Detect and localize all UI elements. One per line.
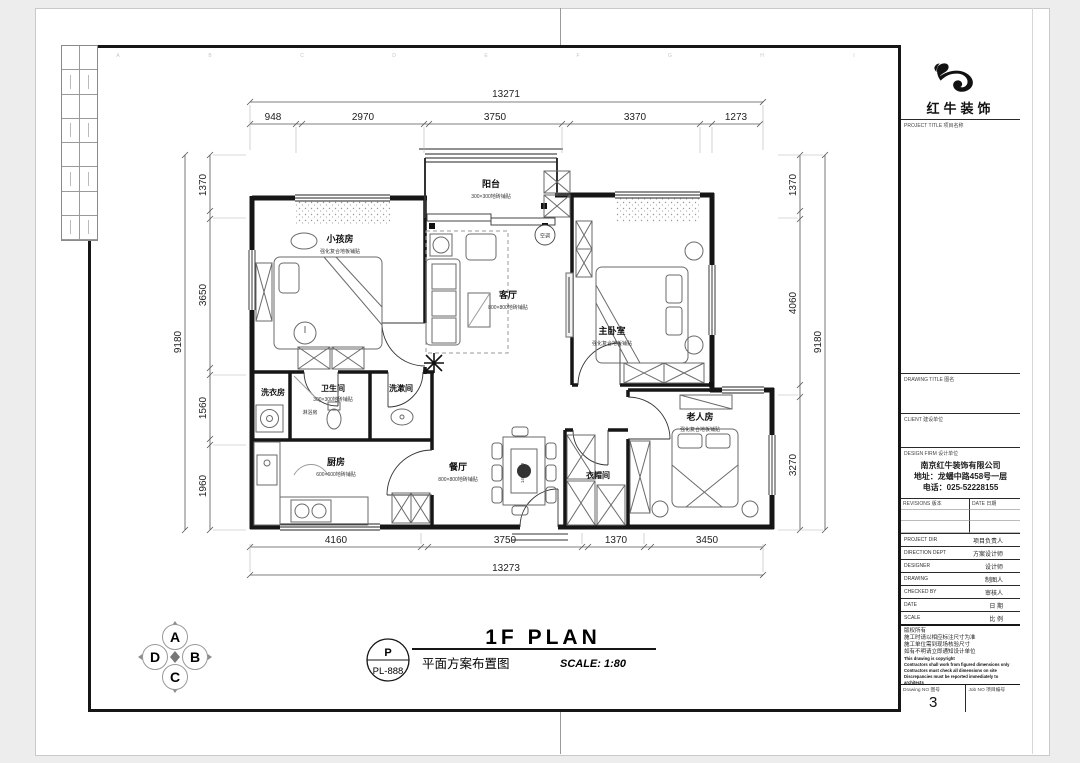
drawing-title-group: P PL-888 1F PLAN 平面方案布置图 SCALE: 1:80 bbox=[367, 626, 656, 681]
bull-logo-icon bbox=[929, 60, 993, 98]
floor-plan: A B C D E F G H I bbox=[88, 45, 900, 712]
compass-b: B bbox=[190, 649, 200, 665]
shower-label: 淋浴房 bbox=[302, 409, 317, 416]
svg-text:300×300地砖铺贴: 300×300地砖铺贴 bbox=[471, 193, 511, 200]
svg-text:3370: 3370 bbox=[624, 112, 647, 123]
sofa bbox=[426, 259, 460, 345]
elder-bed bbox=[672, 429, 738, 507]
toilet bbox=[327, 409, 341, 429]
svg-text:4060: 4060 bbox=[788, 291, 799, 314]
badge-letter: P bbox=[384, 647, 391, 659]
svg-text:13271: 13271 bbox=[492, 89, 520, 100]
fold-mark-bottom bbox=[560, 712, 561, 754]
rev-date-label: DATE 日期 bbox=[970, 499, 1020, 510]
frame-grid-letters: A B C D E F G H I bbox=[116, 53, 854, 59]
drawing-title-field: DRAWING TITLE 图名 bbox=[901, 373, 1020, 413]
plan-title-en: 1F PLAN bbox=[485, 626, 601, 649]
svg-text:1560: 1560 bbox=[198, 396, 209, 419]
room-dining: 餐厅 bbox=[448, 461, 467, 472]
svg-text:9180: 9180 bbox=[173, 330, 184, 353]
stove bbox=[291, 500, 331, 522]
svg-text:E: E bbox=[484, 53, 488, 59]
svg-text:3650: 3650 bbox=[198, 283, 209, 306]
room-balcony: 阳台 bbox=[482, 178, 500, 189]
drawing-no-label: Drawing NO 图号 bbox=[903, 686, 963, 693]
row-direction-dept: DIRECTION DEPT方案设计师 bbox=[901, 546, 1020, 559]
badge-code: PL-888 bbox=[373, 666, 404, 677]
svg-text:4160: 4160 bbox=[325, 535, 348, 546]
room-laundry: 洗衣房 bbox=[261, 387, 285, 397]
svg-text:1370: 1370 bbox=[788, 173, 799, 196]
svg-text:C: C bbox=[300, 53, 304, 59]
svg-text:300×300地砖铺贴: 300×300地砖铺贴 bbox=[313, 396, 353, 403]
project-title-field bbox=[901, 130, 1020, 373]
plan-title-cn: 平面方案布置图 bbox=[422, 656, 510, 671]
svg-text:3750: 3750 bbox=[484, 112, 507, 123]
title-block: 红牛装饰 PROJECT TITLE 项目名称 DRAWING TITLE 图名… bbox=[898, 45, 1020, 712]
drawing-number-row: Drawing NO 图号 3 Job NO 项目编号 bbox=[901, 684, 1020, 712]
margin-line bbox=[1032, 8, 1033, 754]
row-designer: DESIGNER设计师 bbox=[901, 559, 1020, 572]
svg-text:H: H bbox=[760, 53, 764, 59]
firm-address: 地址：龙蟠中路458号一层 bbox=[901, 471, 1020, 482]
compass-c: C bbox=[170, 669, 180, 685]
info-rows: PROJECT DIR项目负责人 DIRECTION DEPT方案设计师 DES… bbox=[901, 533, 1020, 624]
kids-pillow bbox=[279, 263, 299, 293]
row-project-dir: PROJECT DIR项目负责人 bbox=[901, 533, 1020, 546]
svg-text:F: F bbox=[576, 53, 579, 59]
company-name: 红牛装饰 bbox=[926, 98, 994, 117]
svg-text:2970: 2970 bbox=[352, 112, 375, 123]
masonry-hatch-master bbox=[615, 198, 700, 222]
nightstand bbox=[685, 242, 703, 260]
svg-text:1370: 1370 bbox=[198, 173, 209, 196]
dining-chair bbox=[492, 443, 502, 459]
masonry-hatch-kids bbox=[295, 201, 390, 225]
room-kids: 小孩房 bbox=[325, 233, 353, 244]
svg-text:800×800地砖铺贴: 800×800地砖铺贴 bbox=[488, 304, 528, 311]
svg-text:A: A bbox=[116, 53, 120, 59]
svg-text:800×800地砖铺贴: 800×800地砖铺贴 bbox=[438, 476, 478, 483]
svg-text:空调: 空调 bbox=[540, 233, 550, 240]
svg-text:G: G bbox=[668, 53, 672, 59]
master-bed bbox=[596, 267, 688, 363]
svg-text:600×600地砖铺贴: 600×600地砖铺贴 bbox=[316, 471, 356, 478]
extension-lines bbox=[213, 105, 823, 572]
kids-chair bbox=[291, 233, 317, 249]
plan-scale: SCALE: 1:80 bbox=[560, 658, 627, 670]
svg-text:9180: 9180 bbox=[813, 330, 824, 353]
svg-text:3750: 3750 bbox=[494, 535, 517, 546]
svg-text:强化复合地板铺贴: 强化复合地板铺贴 bbox=[320, 248, 360, 255]
balcony-slider bbox=[427, 214, 555, 225]
svg-text:B: B bbox=[208, 53, 212, 59]
svg-text:948: 948 bbox=[265, 112, 282, 123]
client-field: CLIENT 建设单位 bbox=[901, 413, 1020, 447]
room-kitchen: 厨房 bbox=[327, 456, 345, 467]
svg-text:1370: 1370 bbox=[605, 535, 628, 546]
row-date: DATE日 期 bbox=[901, 598, 1020, 611]
kids-bed bbox=[274, 257, 382, 349]
drawing-no-value: 3 bbox=[903, 694, 963, 711]
svg-text:3270: 3270 bbox=[788, 453, 799, 476]
svg-text:I: I bbox=[853, 53, 854, 59]
row-scale: SCALE比 例 bbox=[901, 611, 1020, 624]
fold-mark-top bbox=[560, 8, 561, 45]
kitchen-counter bbox=[254, 442, 280, 525]
compass: A B C D bbox=[138, 621, 212, 693]
dimension-lines bbox=[182, 99, 828, 578]
firm-name: 南京红牛装饰有限公司 bbox=[901, 460, 1020, 471]
svg-text:D: D bbox=[392, 53, 396, 59]
svg-text:1960: 1960 bbox=[198, 474, 209, 497]
compass-d: D bbox=[150, 649, 160, 665]
firm-phone: 电话：025-52228155 bbox=[901, 482, 1020, 493]
room-wash: 洗漱间 bbox=[389, 383, 413, 393]
floorplan-sheet: { "frame": { "grid_letters": ["A","B","C… bbox=[0, 0, 1080, 763]
row-drawing: DRAWING制图人 bbox=[901, 572, 1020, 585]
revisions-label: REVISIONS 版本 bbox=[901, 499, 970, 510]
job-no-label: Job NO 项目编号 bbox=[968, 686, 1018, 693]
svg-text:13273: 13273 bbox=[492, 563, 520, 574]
svg-text:3450: 3450 bbox=[696, 535, 719, 546]
room-cloak: 衣帽间 bbox=[586, 470, 610, 480]
plant bbox=[424, 353, 444, 373]
table-size-label: 1400×800 bbox=[520, 462, 525, 483]
ac-label: 空调 bbox=[535, 225, 555, 245]
copyright-notes: 版权所有 施工时请以相应标注尺寸为准 施工单位需到现场核验尺寸 如有不明请立即通… bbox=[901, 624, 1020, 684]
wash-basin bbox=[391, 409, 413, 425]
project-title-label: PROJECT TITLE 项目名称 bbox=[901, 119, 1020, 130]
svg-text:1273: 1273 bbox=[725, 112, 748, 123]
svg-text:强化复合地板铺贴: 强化复合地板铺贴 bbox=[680, 426, 720, 433]
room-master: 主卧室 bbox=[598, 325, 625, 336]
svg-text:强化复合地板铺贴: 强化复合地板铺贴 bbox=[592, 340, 632, 347]
revisions-table: REVISIONS 版本 DATE 日期 bbox=[901, 498, 1020, 533]
room-living: 客厅 bbox=[498, 289, 517, 300]
room-bath: 卫生间 bbox=[321, 383, 345, 393]
row-checked-by: CHECKED BY审核人 bbox=[901, 585, 1020, 598]
room-elder: 老人房 bbox=[685, 411, 713, 422]
armchair bbox=[466, 234, 496, 260]
compass-a: A bbox=[170, 629, 180, 645]
design-firm-field: DESIGN FIRM 设计单位 南京红牛装饰有限公司 地址：龙蟠中路458号一… bbox=[901, 447, 1020, 498]
company-logo: 红牛装饰 bbox=[901, 45, 1020, 119]
